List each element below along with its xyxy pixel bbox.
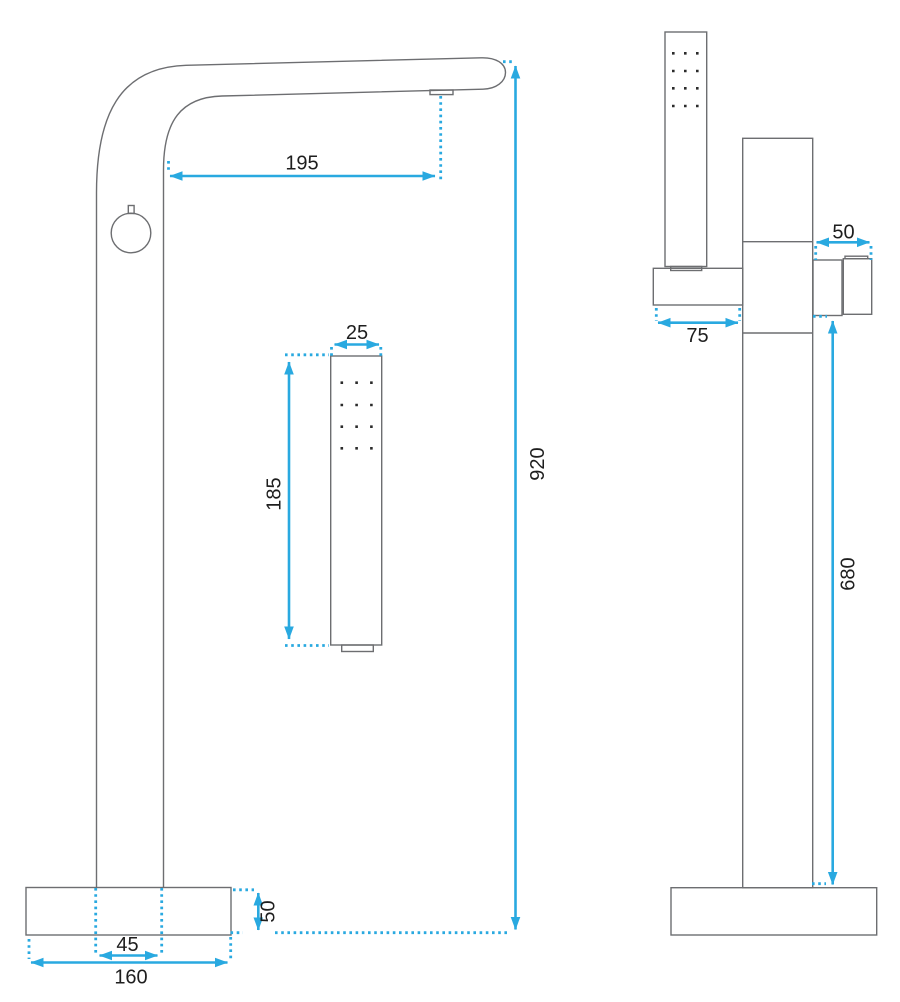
side-view — [653, 32, 876, 935]
dim-label-base-width: 160 — [114, 967, 147, 989]
dimension-annotations: 195 25 185 920 50 45 160 50 75 680 — [29, 62, 871, 989]
front-handle-knob — [111, 213, 151, 253]
side-spout-body — [813, 260, 842, 316]
front-aerator — [430, 90, 453, 95]
dim-label-bracket-reach: 75 — [686, 325, 708, 347]
front-handshower-nozzle — [342, 645, 374, 652]
dim-label-base-thickness: 50 — [258, 900, 280, 922]
dim-label-spout-height: 680 — [838, 557, 860, 590]
front-handle-stem — [128, 206, 134, 214]
side-handshower-body — [665, 32, 707, 267]
dim-label-handshower-width: 25 — [346, 322, 368, 344]
side-spout-tip-step — [845, 256, 868, 259]
dim-label-spout-reach: 195 — [285, 153, 318, 175]
side-base-plate — [671, 888, 877, 935]
side-shower-holder-bracket — [653, 268, 742, 305]
front-handshower-body — [331, 356, 382, 645]
dim-label-spout-length: 50 — [832, 222, 854, 244]
front-base-plate — [26, 888, 231, 936]
dim-label-total-height: 920 — [527, 447, 549, 480]
technical-drawing-canvas: 195 25 185 920 50 45 160 50 75 680 — [0, 0, 900, 1002]
front-faucet-body-outline — [97, 58, 506, 888]
side-handshower-spray-holes — [672, 53, 699, 106]
side-spout-tip — [843, 259, 871, 315]
dim-label-handshower-length: 185 — [264, 477, 286, 510]
dim-label-column-width: 45 — [116, 934, 138, 956]
front-handshower-spray-holes — [341, 383, 373, 449]
side-column — [743, 138, 813, 887]
